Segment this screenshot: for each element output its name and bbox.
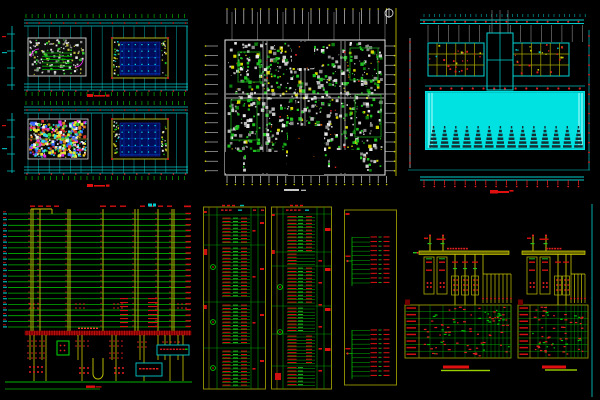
- panel-top-right-roof-plan: [408, 10, 590, 194]
- cad-montage: [0, 0, 600, 400]
- panel-top-left-floor-plan-strips: [2, 14, 188, 187]
- cad-svg: [0, 0, 600, 400]
- panel-bottom-right-single-line-diagrams: [405, 204, 592, 397]
- panel-top-center-floor-plan: [205, 8, 396, 191]
- panel-bottom-left-riser-diagram: [3, 204, 192, 390]
- panel-bottom-center-distribution-schedules: [204, 205, 397, 389]
